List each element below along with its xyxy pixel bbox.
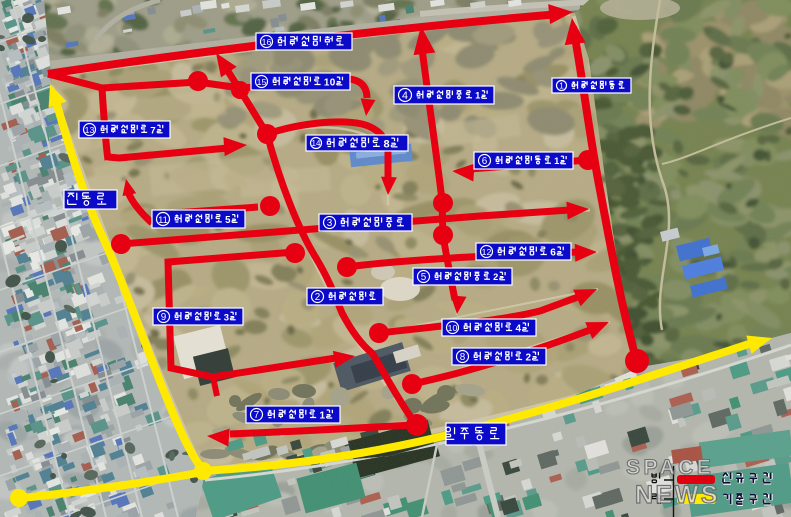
svg-text:NEWS: NEWS [635,481,720,509]
svg-text:5: 5 [225,215,231,226]
svg-text:13: 13 [85,125,95,135]
svg-text:8: 8 [460,352,466,363]
svg-text:7: 7 [150,125,155,136]
svg-text:11: 11 [158,214,168,225]
svg-text:9: 9 [161,312,167,323]
svg-text:2: 2 [526,353,532,364]
svg-text:6: 6 [482,156,488,167]
svg-text:5: 5 [421,272,427,283]
svg-text:10: 10 [448,323,458,333]
svg-text:14: 14 [312,139,321,148]
svg-text:15: 15 [257,77,267,87]
svg-text:12: 12 [482,247,492,257]
svg-text:4: 4 [516,324,522,335]
svg-text:3: 3 [224,311,229,322]
svg-text:4: 4 [402,90,408,102]
svg-text:7: 7 [254,410,260,421]
svg-text:1: 1 [554,156,559,166]
svg-text:SPACE: SPACE [626,456,714,479]
svg-text:2: 2 [315,292,321,303]
svg-text:1: 1 [320,411,326,422]
svg-text:2: 2 [493,272,498,282]
svg-text:1: 1 [475,91,480,101]
svg-text:0: 0 [330,77,336,88]
svg-text:6: 6 [550,248,556,259]
svg-text:8: 8 [384,138,390,150]
svg-text:1: 1 [559,81,564,90]
svg-text:16: 16 [262,37,272,47]
svg-text:3: 3 [327,218,333,229]
